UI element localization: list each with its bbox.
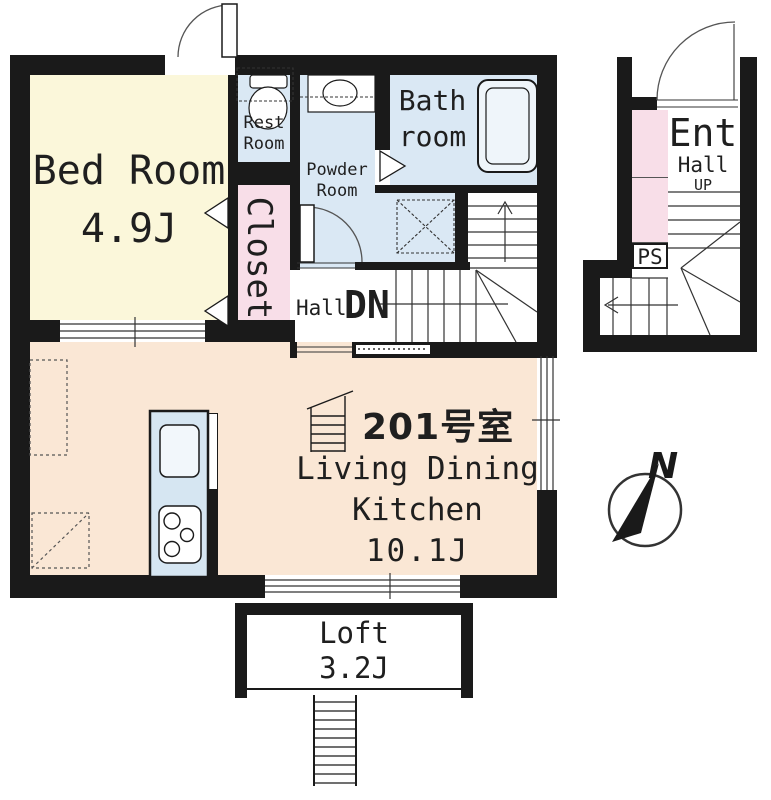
door-swing (657, 22, 735, 100)
wall (740, 57, 757, 352)
annex-closet-divider (632, 177, 668, 178)
stairs-up-flight (468, 202, 537, 268)
door-swing (178, 5, 230, 57)
wall (617, 100, 632, 278)
loft-access-ladder (314, 695, 356, 786)
pipe-space-label: PS (632, 245, 668, 269)
unit-number-label: 201号室 (362, 398, 514, 450)
up-arrow (498, 202, 512, 214)
wall (10, 320, 60, 342)
loft-size-label: 3.2J (247, 651, 461, 685)
wall (375, 55, 390, 150)
powder-room-label-line1: Powder (293, 160, 381, 180)
annex-hall-label: Hall (666, 153, 740, 177)
bedroom-area (30, 75, 228, 320)
wall (617, 57, 632, 102)
compass-north-label: N (648, 446, 678, 487)
restroom-label-line2: Room (238, 134, 290, 154)
ldk-size-label: 10.1J (290, 533, 545, 569)
wall (10, 55, 165, 75)
loft-label: Loft (247, 616, 461, 650)
closet-label: Closet (239, 183, 279, 333)
down-arrow (605, 297, 618, 313)
wall (228, 162, 295, 185)
ldk-label-line2: Kitchen (290, 492, 545, 528)
wall (208, 490, 218, 576)
wall (460, 575, 557, 598)
compass-needle (612, 463, 659, 542)
wall (10, 575, 265, 598)
stairs-dn-flight (380, 270, 537, 342)
wall (228, 75, 238, 320)
wall (290, 342, 297, 358)
wall (235, 55, 557, 75)
entrance-threshold (657, 100, 738, 107)
loft-wall (235, 603, 247, 698)
wall (375, 185, 543, 193)
laundry-area (375, 193, 455, 268)
kitchen-counter-end (208, 413, 218, 490)
wall (455, 193, 468, 268)
bedroom-label: Bed Room (30, 148, 228, 194)
door-leaf (222, 4, 237, 57)
wall-vent-slot (356, 345, 430, 354)
restroom-label-line1: Rest (238, 113, 290, 133)
annex-up-label: UP (666, 176, 740, 194)
ldk-label-line1: Living Dining (290, 451, 545, 487)
loft-wall (235, 603, 473, 615)
wall (583, 335, 757, 352)
window (265, 573, 460, 599)
hall-dn-label: DN (344, 283, 390, 327)
compass: N (609, 446, 681, 546)
wall (355, 262, 470, 270)
bathroom-label-line1: Bath (390, 84, 475, 117)
floor-plan: N Bed Room 4.9J Rest Room Powder Room Ba… (0, 0, 771, 800)
wall (537, 55, 557, 356)
annex-entrance-label: Ent (666, 111, 740, 155)
wall (290, 262, 297, 270)
bathroom-label-line2: room (390, 120, 475, 153)
bedroom-size-label: 4.9J (30, 206, 228, 252)
hall-label: Hall (296, 296, 347, 320)
loft-wall (461, 603, 473, 698)
powder-room-label-line2: Room (293, 181, 381, 201)
